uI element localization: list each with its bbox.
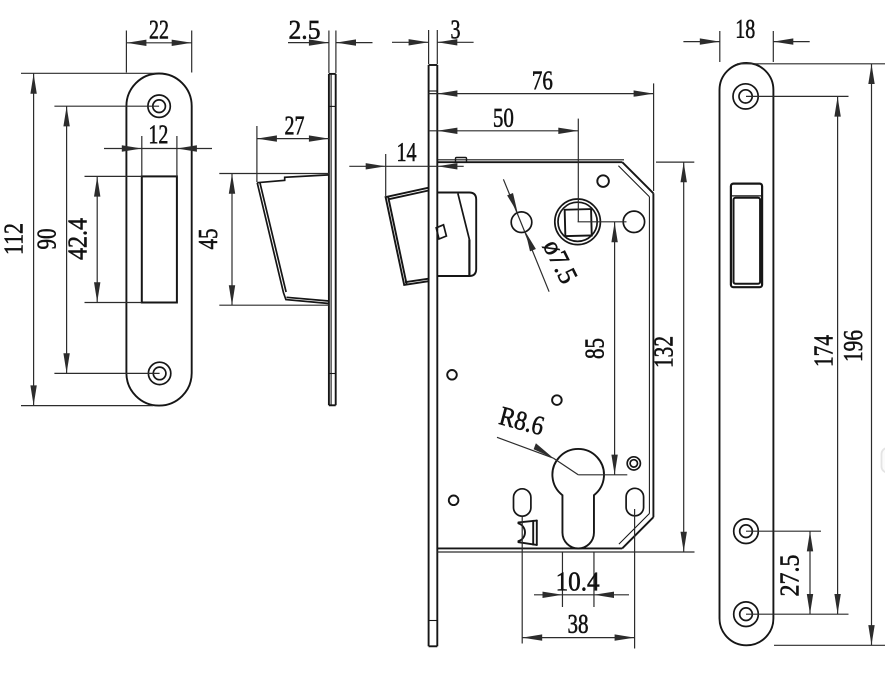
svg-text:85: 85 bbox=[580, 338, 610, 359]
svg-text:50: 50 bbox=[493, 103, 514, 133]
svg-text:3: 3 bbox=[450, 14, 460, 44]
svg-text:22: 22 bbox=[149, 14, 169, 44]
svg-text:196: 196 bbox=[838, 330, 868, 362]
svg-text:27: 27 bbox=[284, 110, 304, 140]
svg-text:90: 90 bbox=[32, 229, 62, 250]
svg-text:45: 45 bbox=[193, 229, 223, 250]
svg-text:14: 14 bbox=[396, 137, 416, 167]
svg-text:112: 112 bbox=[0, 223, 29, 255]
svg-text:27.5: 27.5 bbox=[775, 555, 805, 597]
svg-text:42.4: 42.4 bbox=[63, 218, 93, 260]
svg-text:12: 12 bbox=[148, 119, 168, 149]
svg-text:174: 174 bbox=[808, 335, 838, 367]
svg-text:38: 38 bbox=[567, 609, 588, 639]
svg-text:76: 76 bbox=[532, 65, 553, 95]
svg-text:10.4: 10.4 bbox=[556, 566, 600, 596]
svg-text:18: 18 bbox=[735, 14, 755, 44]
svg-text:2.5: 2.5 bbox=[288, 15, 320, 45]
svg-text:132: 132 bbox=[648, 336, 678, 368]
